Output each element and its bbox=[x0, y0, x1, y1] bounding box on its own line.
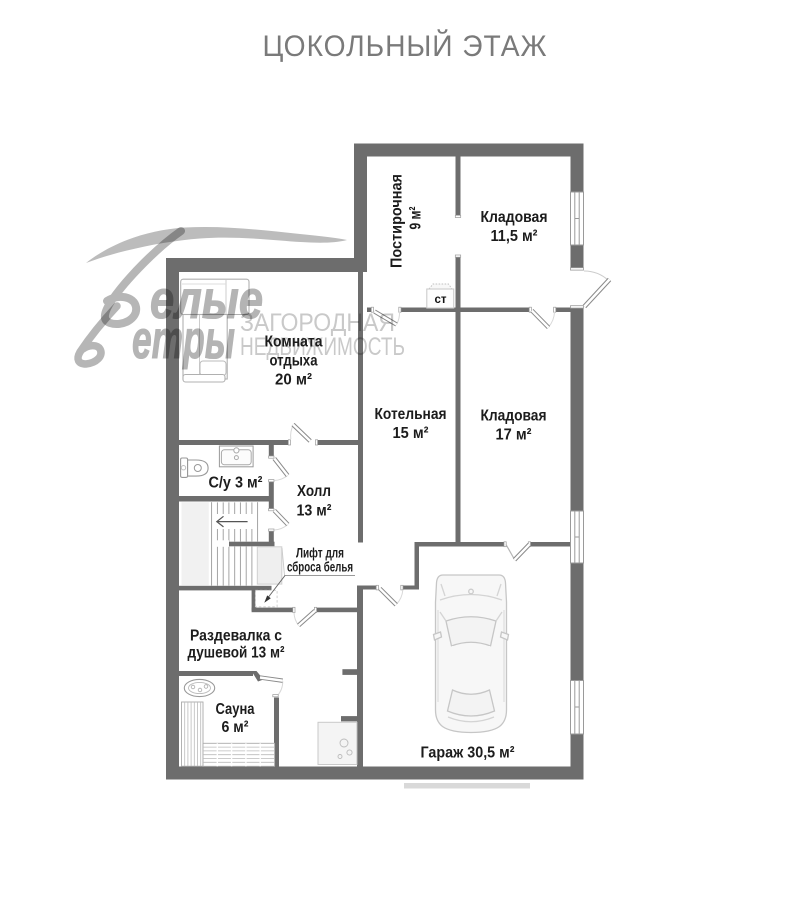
svg-text:Постирочная: Постирочная bbox=[389, 174, 406, 268]
svg-text:20 м²: 20 м² bbox=[275, 372, 312, 389]
svg-text:отдыха: отдыха bbox=[270, 353, 318, 370]
svg-text:сброса белья: сброса белья bbox=[287, 560, 353, 575]
svg-text:Кладовая: Кладовая bbox=[481, 209, 548, 226]
svg-text:Кладовая: Кладовая bbox=[481, 408, 547, 425]
svg-text:Лифт для: Лифт для bbox=[296, 546, 344, 561]
svg-text:С/у 3 м²: С/у 3 м² bbox=[209, 475, 263, 492]
svg-text:Сауна: Сауна bbox=[216, 701, 255, 718]
svg-text:Котельная: Котельная bbox=[375, 406, 447, 423]
svg-text:9 м²: 9 м² bbox=[408, 207, 425, 230]
svg-text:ЦОКОЛЬНЫЙ ЭТАЖ: ЦОКОЛЬНЫЙ ЭТАЖ bbox=[263, 29, 548, 63]
svg-text:етры: етры bbox=[132, 310, 235, 370]
svg-text:Раздевалка с: Раздевалка с bbox=[190, 628, 282, 645]
svg-text:13 м²: 13 м² bbox=[297, 503, 332, 520]
svg-text:Комната: Комната bbox=[265, 334, 323, 351]
svg-text:17 м²: 17 м² bbox=[496, 427, 532, 444]
svg-text:ст: ст bbox=[434, 294, 446, 306]
svg-text:6 м²: 6 м² bbox=[222, 719, 249, 736]
svg-text:Гараж 30,5 м²: Гараж 30,5 м² bbox=[421, 745, 515, 762]
svg-text:15 м²: 15 м² bbox=[393, 425, 429, 442]
svg-text:душевой 13 м²: душевой 13 м² bbox=[188, 645, 285, 662]
svg-text:11,5 м²: 11,5 м² bbox=[491, 228, 538, 245]
svg-text:Холл: Холл bbox=[297, 483, 331, 500]
